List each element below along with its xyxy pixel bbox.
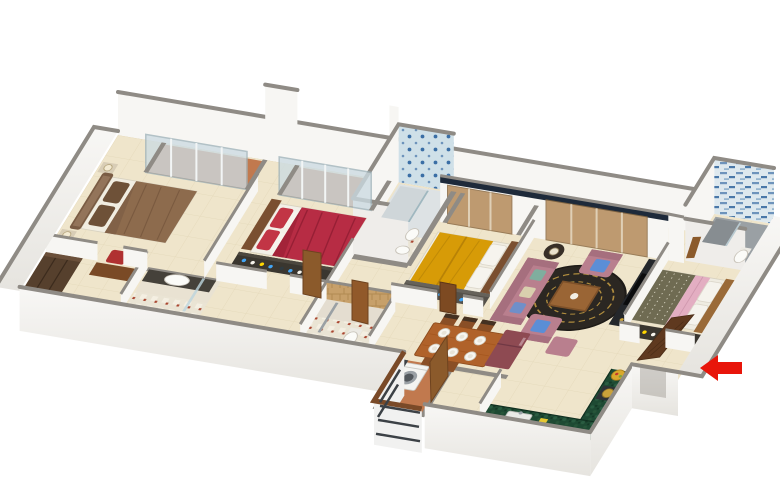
corridor-door [303, 250, 321, 298]
corridor-door [352, 280, 368, 324]
floorplan-3d-render [0, 0, 780, 490]
back-pillar-1 [265, 85, 297, 166]
floorplan-screenshot [0, 0, 780, 490]
bedroom3-door [440, 282, 456, 314]
